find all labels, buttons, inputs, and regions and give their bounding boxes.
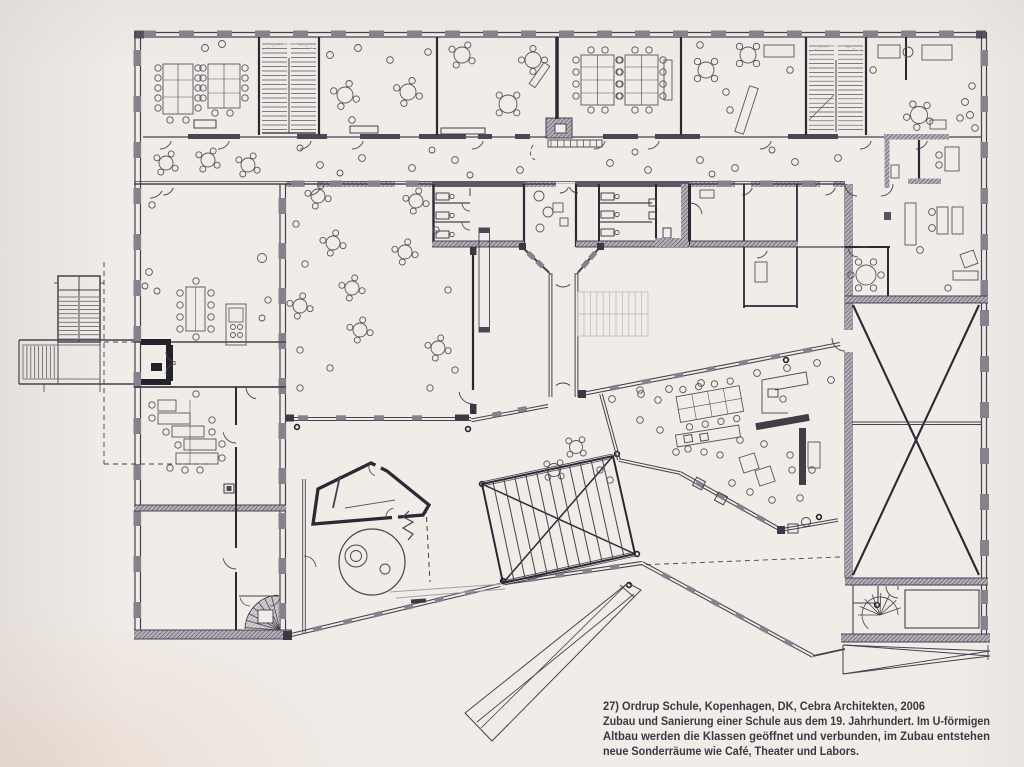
- svg-text:neue Sonderräume wie Café, The: neue Sonderräume wie Café, Theater und L…: [603, 745, 859, 758]
- svg-text:27) Ordrup Schule, Kopenhagen,: 27) Ordrup Schule, Kopenhagen, DK, Cebra…: [603, 700, 926, 713]
- svg-text:Altbau werden die Klassen geöf: Altbau werden die Klassen geöffnet und v…: [603, 730, 990, 743]
- svg-text:Zubau und Sanierung einer Schu: Zubau und Sanierung einer Schule aus dem…: [603, 715, 990, 728]
